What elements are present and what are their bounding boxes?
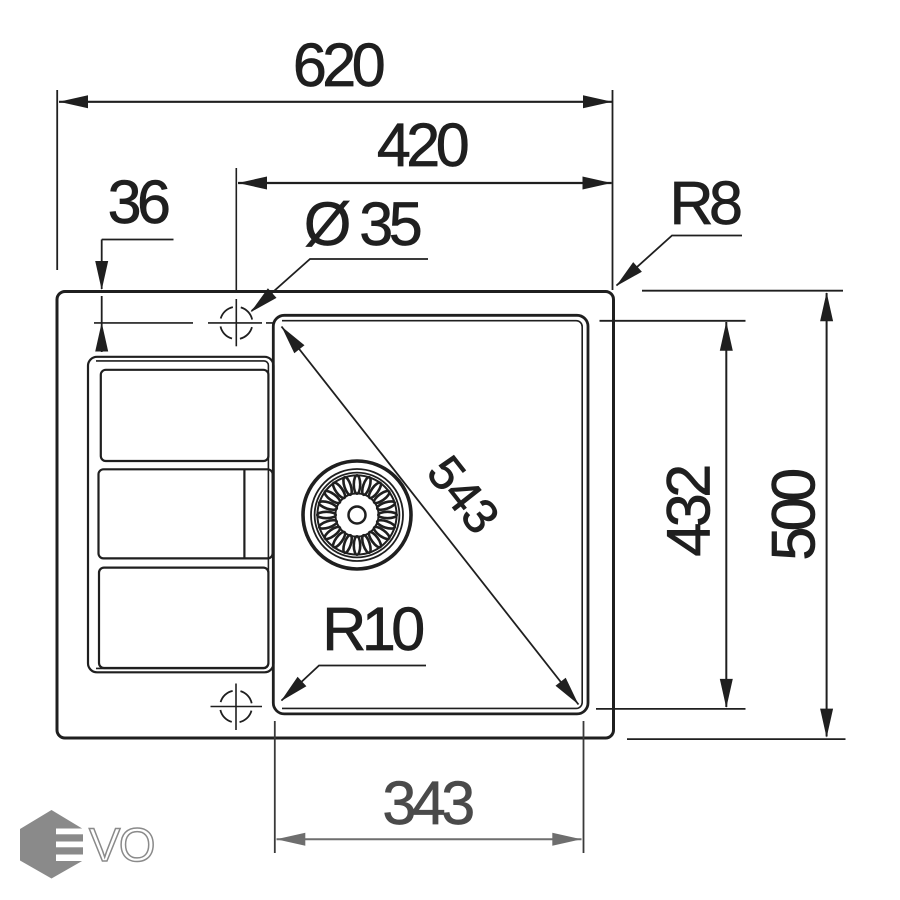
svg-text:620: 620 bbox=[293, 31, 384, 99]
svg-text:R8: R8 bbox=[670, 169, 742, 237]
svg-text:343: 343 bbox=[382, 769, 473, 837]
svg-text:36: 36 bbox=[108, 168, 169, 236]
svg-text:Ø 35: Ø 35 bbox=[304, 190, 421, 258]
svg-text:500: 500 bbox=[760, 470, 828, 561]
svg-text:543: 543 bbox=[416, 446, 509, 544]
svg-text:R10: R10 bbox=[322, 595, 423, 663]
svg-text:420: 420 bbox=[377, 111, 468, 179]
svg-text:432: 432 bbox=[655, 467, 723, 557]
svg-text:VO: VO bbox=[89, 818, 154, 871]
